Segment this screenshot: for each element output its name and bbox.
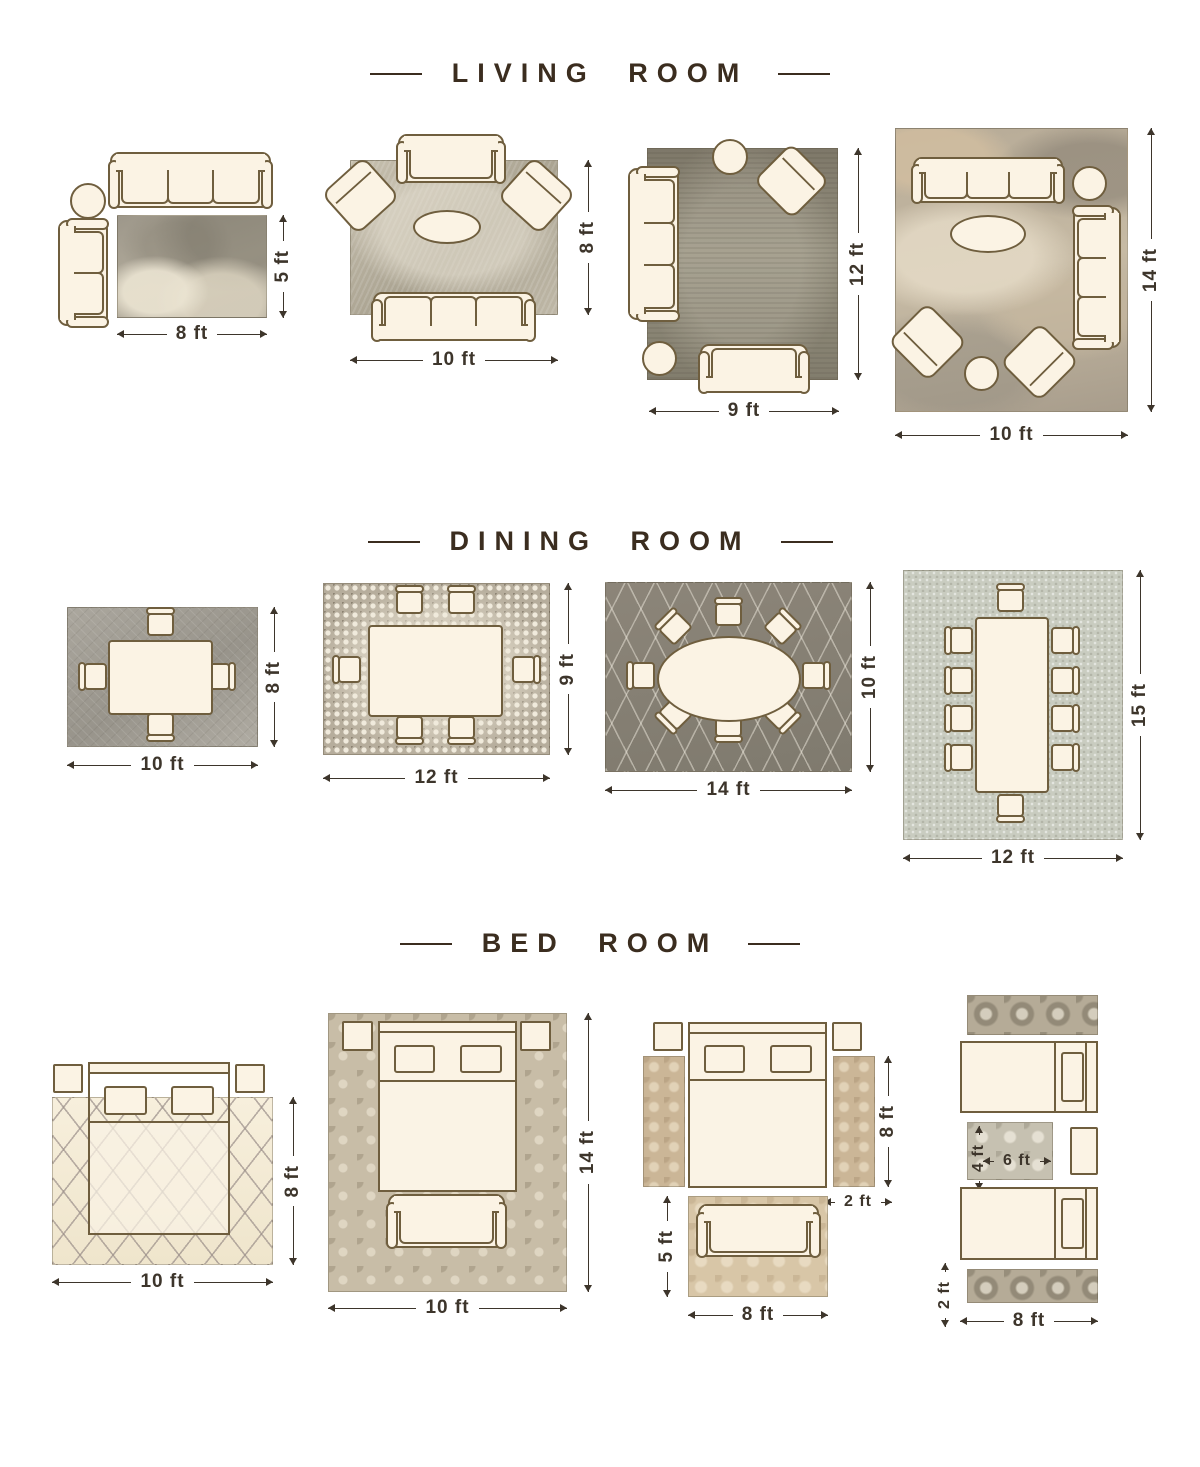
- bed-blanket: [88, 1121, 230, 1235]
- dimension-line: [52, 1282, 131, 1283]
- furniture-cushion: [644, 179, 675, 224]
- dimension-line: [274, 607, 275, 652]
- dining-chair: [950, 705, 973, 732]
- width-dimension: 9 ft: [649, 400, 839, 422]
- dimension-line: [588, 160, 589, 212]
- nightstand: [520, 1021, 551, 1051]
- dimension-label: 15 ft: [1129, 683, 1151, 727]
- dimension-line: [588, 1013, 589, 1121]
- dining-chair: [802, 662, 825, 689]
- dimension-line: [649, 411, 719, 412]
- dimension-line: [1140, 570, 1141, 674]
- dimension-label: 6 ft: [1003, 1152, 1031, 1170]
- nightstand: [832, 1022, 862, 1051]
- side-table: [964, 356, 999, 391]
- title-dash-icon: [370, 73, 422, 75]
- title-dash-icon: [368, 541, 420, 543]
- bed-pillow: [460, 1045, 502, 1073]
- furniture-cushions: [644, 179, 675, 309]
- height-dimension: 8 ft: [263, 607, 285, 747]
- dimension-line: [283, 292, 284, 318]
- section-title-text: BED ROOM: [482, 928, 719, 959]
- furniture-cushions: [399, 1211, 494, 1244]
- sofa: [1073, 207, 1121, 348]
- furniture-cushion: [924, 172, 968, 199]
- runner-rug: [833, 1056, 875, 1187]
- dimension-label: 14 ft: [706, 779, 750, 801]
- dining-chair: [1051, 627, 1074, 654]
- furniture-cushion: [212, 170, 260, 204]
- dimension-line: [769, 411, 839, 412]
- furniture-cushion: [1077, 218, 1106, 259]
- dimension-label: 12 ft: [847, 242, 869, 286]
- loveseat: [398, 134, 504, 183]
- dimension-line: [870, 582, 871, 646]
- dining-chair: [950, 667, 973, 694]
- furniture-cushion: [409, 150, 493, 180]
- dining-table: [108, 640, 213, 715]
- coffee-table: [950, 215, 1026, 253]
- runner-rug: [967, 995, 1098, 1035]
- bed-blanket: [378, 1080, 517, 1192]
- dimension-label: 10 ft: [425, 1297, 469, 1319]
- dimension-line: [588, 263, 589, 315]
- furniture-cushion: [74, 272, 104, 315]
- bench: [388, 1194, 505, 1248]
- nightstand: [653, 1022, 683, 1051]
- dimension-line: [760, 790, 852, 791]
- furniture-cushion: [1077, 257, 1106, 298]
- furniture-cushion: [644, 222, 675, 267]
- dining-chair: [997, 589, 1024, 612]
- runner-width-dimension: 2 ft: [824, 1191, 890, 1213]
- dimension-label: 9 ft: [557, 653, 579, 686]
- bed: [378, 1021, 517, 1192]
- dimension-line: [468, 778, 550, 779]
- dimension-label: 2 ft: [936, 1281, 954, 1309]
- furniture-cushions: [709, 1221, 808, 1253]
- furniture-cushion: [709, 1221, 808, 1253]
- dimension-line: [1151, 301, 1152, 412]
- oval-dining-table: [657, 636, 801, 722]
- dimension-line: [979, 1126, 980, 1135]
- furniture-cushion: [430, 296, 478, 326]
- dining-chair: [448, 716, 475, 739]
- dimension-line: [870, 708, 871, 772]
- dining-chair: [1051, 744, 1074, 771]
- furniture-cushions: [121, 170, 260, 204]
- loveseat: [698, 1204, 819, 1257]
- furniture-backrest: [379, 324, 528, 340]
- dimension-line: [960, 1321, 1004, 1322]
- furniture-cushion: [966, 172, 1010, 199]
- furniture-cushions: [384, 296, 523, 326]
- bed-pillow: [104, 1086, 147, 1115]
- dimension-label: 12 ft: [414, 767, 458, 789]
- height-dimension: 14 ft: [577, 1013, 599, 1292]
- section-title-dining-room: DINING ROOM: [0, 526, 1200, 557]
- furniture-cushion: [711, 348, 797, 378]
- dining-chair: [147, 613, 174, 636]
- nightstand: [53, 1064, 83, 1093]
- dimension-label: 8 ft: [742, 1304, 775, 1326]
- bed-headboard: [90, 1064, 228, 1074]
- bed-headboard: [690, 1024, 825, 1034]
- dimension-line: [667, 1272, 668, 1297]
- dimension-line: [783, 1315, 828, 1316]
- width-dimension: 14 ft: [605, 779, 852, 801]
- bed-pillow: [704, 1045, 746, 1073]
- dimension-line: [1140, 736, 1141, 840]
- furniture-cushion: [644, 264, 675, 309]
- dimension-line: [983, 1161, 994, 1162]
- bed-sheet-fold: [1054, 1041, 1056, 1113]
- dimension-line: [283, 215, 284, 241]
- section-title-text: DINING ROOM: [450, 526, 751, 557]
- bed-blanket: [688, 1079, 827, 1188]
- bed-pillow: [171, 1086, 214, 1115]
- width-dimension: 8 ft: [117, 323, 267, 345]
- dining-chair: [396, 716, 423, 739]
- sofa: [373, 292, 534, 341]
- dimension-label: 10 ft: [432, 349, 476, 371]
- side-table: [1072, 166, 1107, 201]
- dimension-line: [588, 1184, 589, 1292]
- dimension-label: 14 ft: [577, 1130, 599, 1174]
- dining-chair: [715, 603, 742, 626]
- title-dash-icon: [400, 943, 452, 945]
- dimension-line: [350, 360, 423, 361]
- dimension-label: 8 ft: [263, 661, 285, 694]
- dimension-line: [217, 334, 267, 335]
- dimension-line: [1044, 858, 1123, 859]
- dimension-line: [323, 778, 405, 779]
- dimension-line: [895, 435, 980, 436]
- sofa: [110, 152, 271, 208]
- side-table: [712, 139, 748, 175]
- dimension-label: 10 ft: [140, 754, 184, 776]
- dimension-label: 14 ft: [1140, 248, 1162, 292]
- dimension-line: [568, 583, 569, 644]
- coffee-table: [413, 210, 481, 244]
- dining-table: [975, 617, 1049, 793]
- dimension-line: [1040, 1161, 1051, 1162]
- furniture-cushion: [1008, 172, 1052, 199]
- dimension-label: 2 ft: [844, 1193, 872, 1211]
- dimension-line: [888, 1056, 889, 1096]
- width-dimension: 10 ft: [67, 754, 258, 776]
- dining-chair: [632, 662, 655, 689]
- runner-rug: [643, 1056, 685, 1187]
- furniture-cushions: [1077, 218, 1106, 337]
- nightstand: [1070, 1127, 1098, 1175]
- furniture-cushion: [1077, 296, 1106, 337]
- furniture-cushion: [399, 1211, 494, 1244]
- side-table: [70, 183, 106, 219]
- width-dimension: 10 ft: [895, 424, 1128, 446]
- runner-length-dimension: 8 ft: [877, 1056, 899, 1187]
- dimension-line: [667, 1196, 668, 1221]
- dimension-line: [194, 1282, 273, 1283]
- dimension-line: [67, 765, 131, 766]
- dimension-label: 10 ft: [859, 655, 881, 699]
- title-dash-icon: [748, 943, 800, 945]
- loveseat: [700, 344, 808, 393]
- dimension-line: [858, 295, 859, 380]
- dimension-label: 8 ft: [1013, 1310, 1046, 1332]
- bed: [688, 1022, 827, 1188]
- bed-headboard: [1085, 1189, 1096, 1258]
- title-dash-icon: [778, 73, 830, 75]
- height-dimension: 10 ft: [859, 582, 881, 772]
- width-dimension: 10 ft: [350, 349, 558, 371]
- dimension-line: [328, 1308, 416, 1309]
- bed-pillow: [1061, 1198, 1084, 1249]
- dimension-line: [858, 148, 859, 233]
- dimension-line: [1054, 1321, 1098, 1322]
- dimension-line: [194, 765, 258, 766]
- twin-bed: [960, 1041, 1098, 1113]
- dimension-line: [605, 790, 697, 791]
- dimension-line: [903, 858, 982, 859]
- runner-rug: [967, 1269, 1098, 1303]
- width-dimension: 8 ft: [688, 1304, 828, 1326]
- loveseat: [58, 220, 108, 326]
- dimension-label: 8 ft: [176, 323, 209, 345]
- height-dimension: 9 ft: [557, 583, 579, 755]
- furniture-backrest: [706, 376, 802, 392]
- dimension-label: 10 ft: [989, 424, 1033, 446]
- width-dimension: 12 ft: [323, 767, 550, 789]
- height-dimension: 8 ft: [577, 160, 599, 315]
- dimension-line: [568, 694, 569, 755]
- bed-sheet-fold: [1054, 1187, 1056, 1260]
- dining-chair: [84, 663, 107, 690]
- furniture-backrest: [1104, 213, 1119, 342]
- nightstand: [235, 1064, 265, 1093]
- height-dimension: 14 ft: [1140, 128, 1162, 412]
- furniture-cushion: [384, 296, 432, 326]
- side-table: [642, 341, 677, 376]
- dining-chair: [997, 794, 1024, 817]
- bed: [88, 1062, 230, 1235]
- bed-pillow: [770, 1045, 812, 1073]
- dimension-line: [293, 1097, 294, 1156]
- height-dimension: 15 ft: [1129, 570, 1151, 840]
- rug-size-guide: LIVING ROOM 8 ft 5 ft 10 ft 8 ft 9 ft 12…: [0, 0, 1200, 1467]
- bed-headboard: [380, 1023, 515, 1033]
- dimension-label: 8 ft: [577, 221, 599, 254]
- dimension-label: 8 ft: [877, 1105, 899, 1138]
- dimension-label: 9 ft: [728, 400, 761, 422]
- dimension-line: [1151, 128, 1152, 239]
- width-dimension: 12 ft: [903, 847, 1123, 869]
- furniture-backrest: [326, 161, 372, 205]
- dimension-label: 5 ft: [272, 250, 294, 283]
- dimension-line: [688, 1315, 733, 1316]
- living-rug-8x5: [117, 215, 267, 318]
- dimension-line: [479, 1308, 567, 1309]
- dining-chair: [950, 744, 973, 771]
- dimension-line: [945, 1318, 946, 1327]
- sofa: [913, 157, 1063, 203]
- height-dimension: 5 ft: [656, 1196, 678, 1297]
- width-dimension: 8 ft: [960, 1310, 1098, 1332]
- dimension-line: [293, 1206, 294, 1265]
- dimension-line: [888, 1147, 889, 1187]
- furniture-cushions: [924, 172, 1052, 199]
- furniture-cushion: [74, 231, 104, 274]
- width-dimension: 10 ft: [328, 1297, 567, 1319]
- furniture-cushions: [409, 150, 493, 180]
- sofa: [628, 168, 679, 320]
- dining-chair: [512, 656, 535, 683]
- bed-headboard: [1085, 1043, 1096, 1111]
- dining-chair: [396, 591, 423, 614]
- title-dash-icon: [781, 541, 833, 543]
- dimension-line: [485, 360, 558, 361]
- dining-chair: [1051, 705, 1074, 732]
- dining-table: [368, 625, 503, 717]
- furniture-cushions: [74, 231, 104, 315]
- furniture-cushions: [711, 348, 797, 378]
- furniture-cushion: [167, 170, 215, 204]
- dining-chair: [448, 591, 475, 614]
- dimension-label: 8 ft: [282, 1165, 304, 1198]
- height-dimension: 5 ft: [272, 215, 294, 318]
- dining-chair: [1051, 667, 1074, 694]
- dimension-label: 5 ft: [656, 1230, 678, 1263]
- furniture-cushion: [475, 296, 523, 326]
- bed-pillow: [1061, 1052, 1084, 1102]
- height-dimension: 12 ft: [847, 148, 869, 380]
- bed-pillow: [394, 1045, 436, 1073]
- section-title-living-room: LIVING ROOM: [0, 58, 1200, 89]
- dimension-label: 12 ft: [991, 847, 1035, 869]
- dimension-line: [274, 702, 275, 747]
- runner-width-dimension: 2 ft: [934, 1263, 956, 1309]
- dimension-line: [117, 334, 167, 335]
- dimension-label: 10 ft: [140, 1271, 184, 1293]
- section-title-bed-room: BED ROOM: [0, 928, 1200, 959]
- dimension-line: [945, 1263, 946, 1272]
- mid-rug-width-dimension: 6 ft: [983, 1150, 1049, 1172]
- width-dimension: 10 ft: [52, 1271, 273, 1293]
- dining-chair: [147, 713, 174, 736]
- dining-chair: [338, 656, 361, 683]
- section-title-text: LIVING ROOM: [452, 58, 749, 89]
- furniture-cushion: [121, 170, 169, 204]
- height-dimension: 8 ft: [282, 1097, 304, 1265]
- dining-chair: [950, 627, 973, 654]
- dimension-line: [881, 1202, 892, 1203]
- nightstand: [342, 1021, 373, 1051]
- dimension-line: [1043, 435, 1128, 436]
- twin-bed: [960, 1187, 1098, 1260]
